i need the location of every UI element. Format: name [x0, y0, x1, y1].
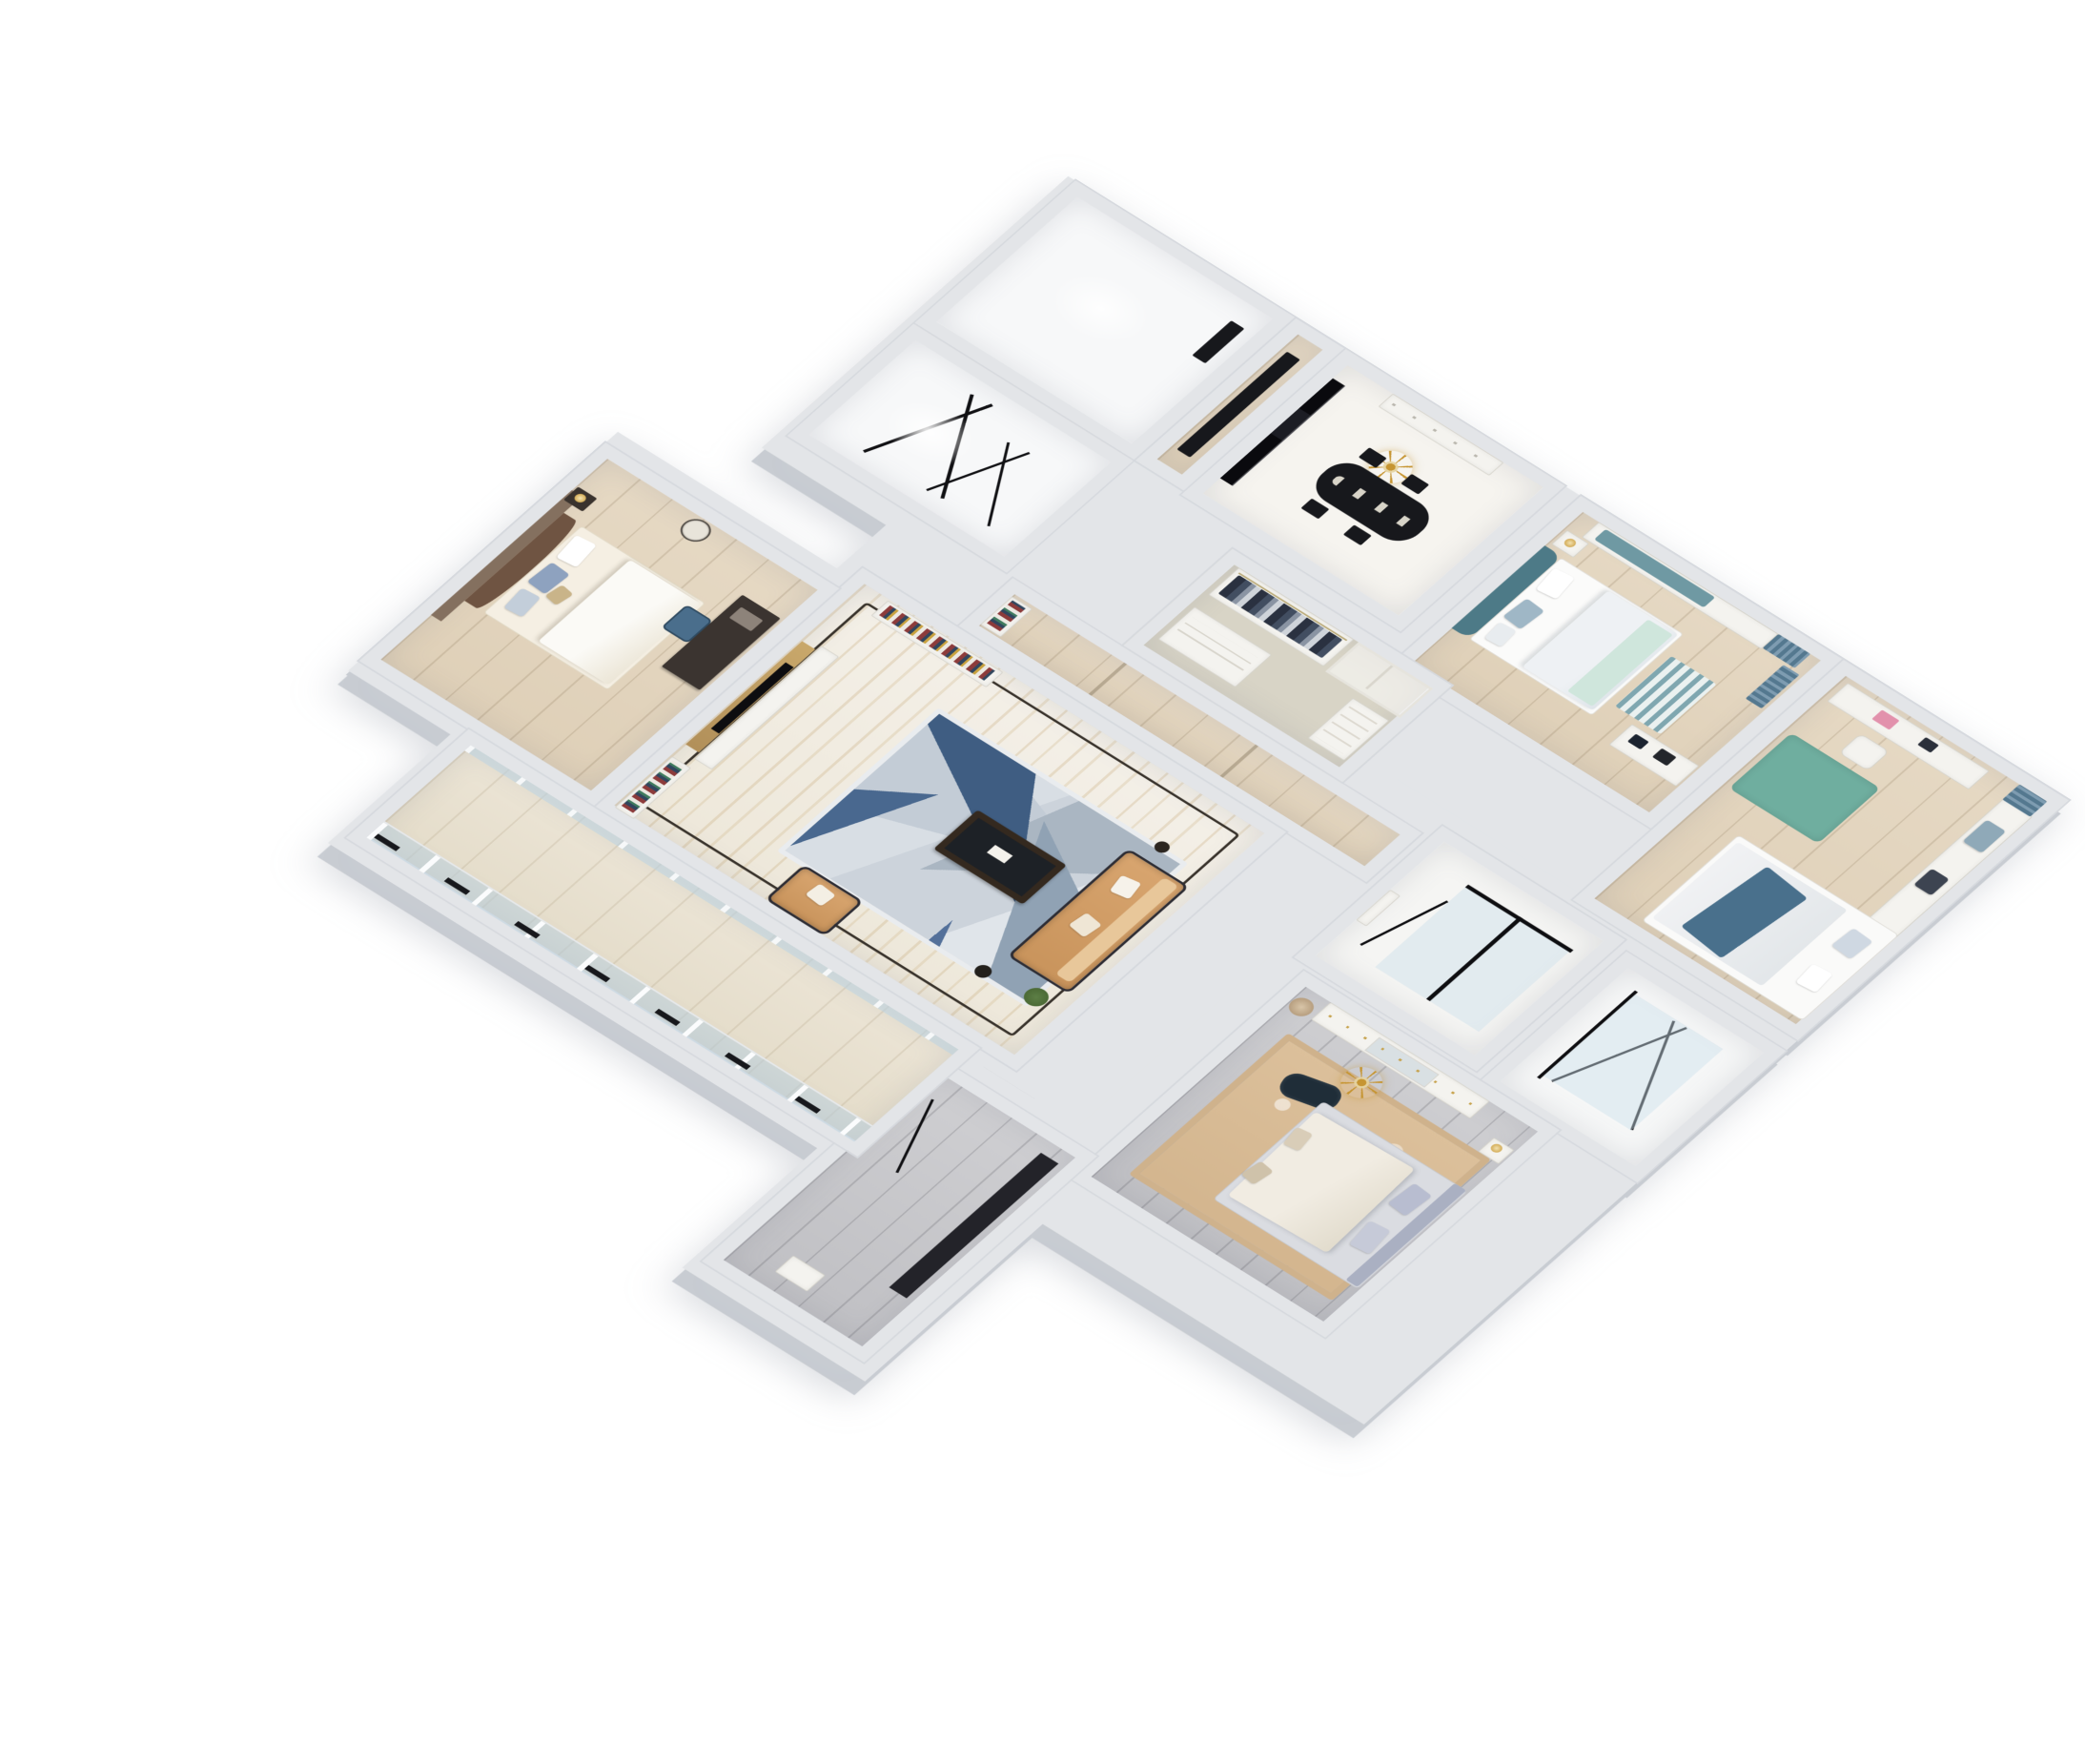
dining-chair — [1300, 499, 1329, 520]
shelf-lines — [1315, 704, 1380, 753]
closet-shelf-tower — [1307, 698, 1389, 761]
drawer-lines — [1171, 617, 1257, 676]
sofa-pillow — [1109, 875, 1141, 900]
hall-seat — [774, 1256, 825, 1292]
bath-door — [1356, 890, 1400, 927]
page: { "scene": { "title": "3D isometric apar… — [0, 0, 2085, 1764]
shower-glass — [1543, 995, 1723, 1131]
desk-decor — [728, 606, 763, 631]
floorplan-render-stage — [0, 0, 2085, 1764]
sofa-pillow — [1068, 913, 1101, 937]
glass-mullion — [1365, 666, 1393, 689]
ceiling-light-glow — [1029, 256, 1172, 360]
desk-chair — [1838, 733, 1890, 771]
threshold-line — [1219, 745, 1257, 778]
ceiling-light-glow — [865, 385, 994, 479]
sketch-line — [987, 442, 1010, 526]
round-mirror-icon — [674, 514, 717, 546]
apartment-3d-floorplan — [17, 117, 2069, 1648]
window-curtain — [1745, 665, 1799, 708]
dining-chair — [1342, 524, 1371, 545]
threshold-line — [1088, 663, 1126, 696]
dark-doorway — [1192, 320, 1244, 363]
window-seat — [1865, 798, 2033, 939]
armchair-pillow — [805, 883, 835, 906]
